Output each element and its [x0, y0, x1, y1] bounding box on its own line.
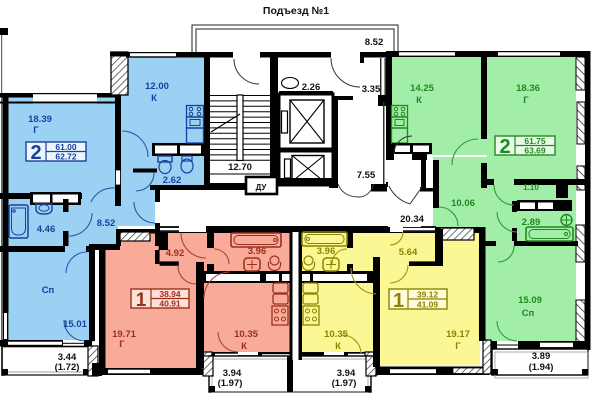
svg-text:61.75: 61.75: [524, 136, 546, 146]
svg-text:3.96: 3.96: [248, 246, 267, 257]
svg-text:12.70: 12.70: [228, 162, 252, 173]
svg-text:4.46: 4.46: [37, 224, 56, 235]
svg-text:2: 2: [499, 136, 510, 158]
svg-text:К: К: [241, 341, 247, 352]
svg-text:4.92: 4.92: [166, 248, 185, 259]
svg-text:3.96: 3.96: [317, 246, 336, 257]
svg-text:1: 1: [393, 290, 404, 312]
svg-text:5.64: 5.64: [399, 247, 418, 258]
svg-text:ДУ: ДУ: [256, 183, 268, 192]
svg-text:61.00: 61.00: [55, 142, 77, 152]
svg-text:Г: Г: [119, 339, 125, 350]
svg-text:38.94: 38.94: [159, 289, 181, 299]
svg-text:(1.94): (1.94): [529, 362, 554, 373]
svg-text:2.26: 2.26: [302, 82, 321, 93]
svg-text:18.39: 18.39: [28, 114, 52, 125]
svg-text:63.69: 63.69: [524, 146, 546, 156]
svg-text:19.17: 19.17: [446, 329, 470, 340]
svg-text:Г: Г: [33, 125, 39, 136]
svg-text:41.09: 41.09: [417, 300, 439, 310]
svg-text:(1.97): (1.97): [218, 378, 243, 389]
svg-text:Г: Г: [523, 95, 529, 106]
svg-text:Сп: Сп: [42, 285, 55, 296]
svg-text:12.00: 12.00: [145, 81, 169, 92]
svg-text:К: К: [416, 95, 422, 106]
svg-text:1.10: 1.10: [523, 183, 539, 192]
svg-text:Сп: Сп: [522, 308, 535, 319]
svg-text:20.34: 20.34: [400, 214, 424, 225]
svg-text:(1.97): (1.97): [332, 378, 357, 389]
svg-text:3.35: 3.35: [362, 84, 381, 95]
svg-text:Подъезд №1: Подъезд №1: [263, 5, 329, 17]
svg-text:К: К: [335, 341, 341, 352]
svg-text:14.25: 14.25: [410, 83, 434, 94]
svg-text:Г: Г: [455, 341, 461, 352]
svg-text:18.36: 18.36: [516, 83, 540, 94]
svg-text:10.06: 10.06: [451, 198, 475, 209]
svg-text:2.62: 2.62: [163, 175, 182, 186]
svg-text:7.55: 7.55: [357, 170, 376, 181]
svg-text:10.35: 10.35: [234, 329, 258, 340]
svg-text:40.91: 40.91: [159, 299, 181, 309]
svg-text:1: 1: [136, 290, 147, 311]
svg-text:8.52: 8.52: [97, 218, 116, 229]
svg-text:15.01: 15.01: [63, 319, 87, 330]
svg-text:3.89: 3.89: [532, 351, 551, 362]
svg-text:8.52: 8.52: [365, 37, 384, 48]
svg-text:62.72: 62.72: [55, 152, 77, 162]
svg-text:39.12: 39.12: [417, 290, 439, 300]
svg-text:10.35: 10.35: [324, 329, 348, 340]
svg-text:К: К: [151, 93, 157, 104]
svg-text:(1.72): (1.72): [55, 362, 80, 373]
svg-text:2.89: 2.89: [522, 217, 541, 228]
svg-text:2: 2: [30, 142, 41, 164]
svg-text:15.09: 15.09: [518, 295, 542, 306]
